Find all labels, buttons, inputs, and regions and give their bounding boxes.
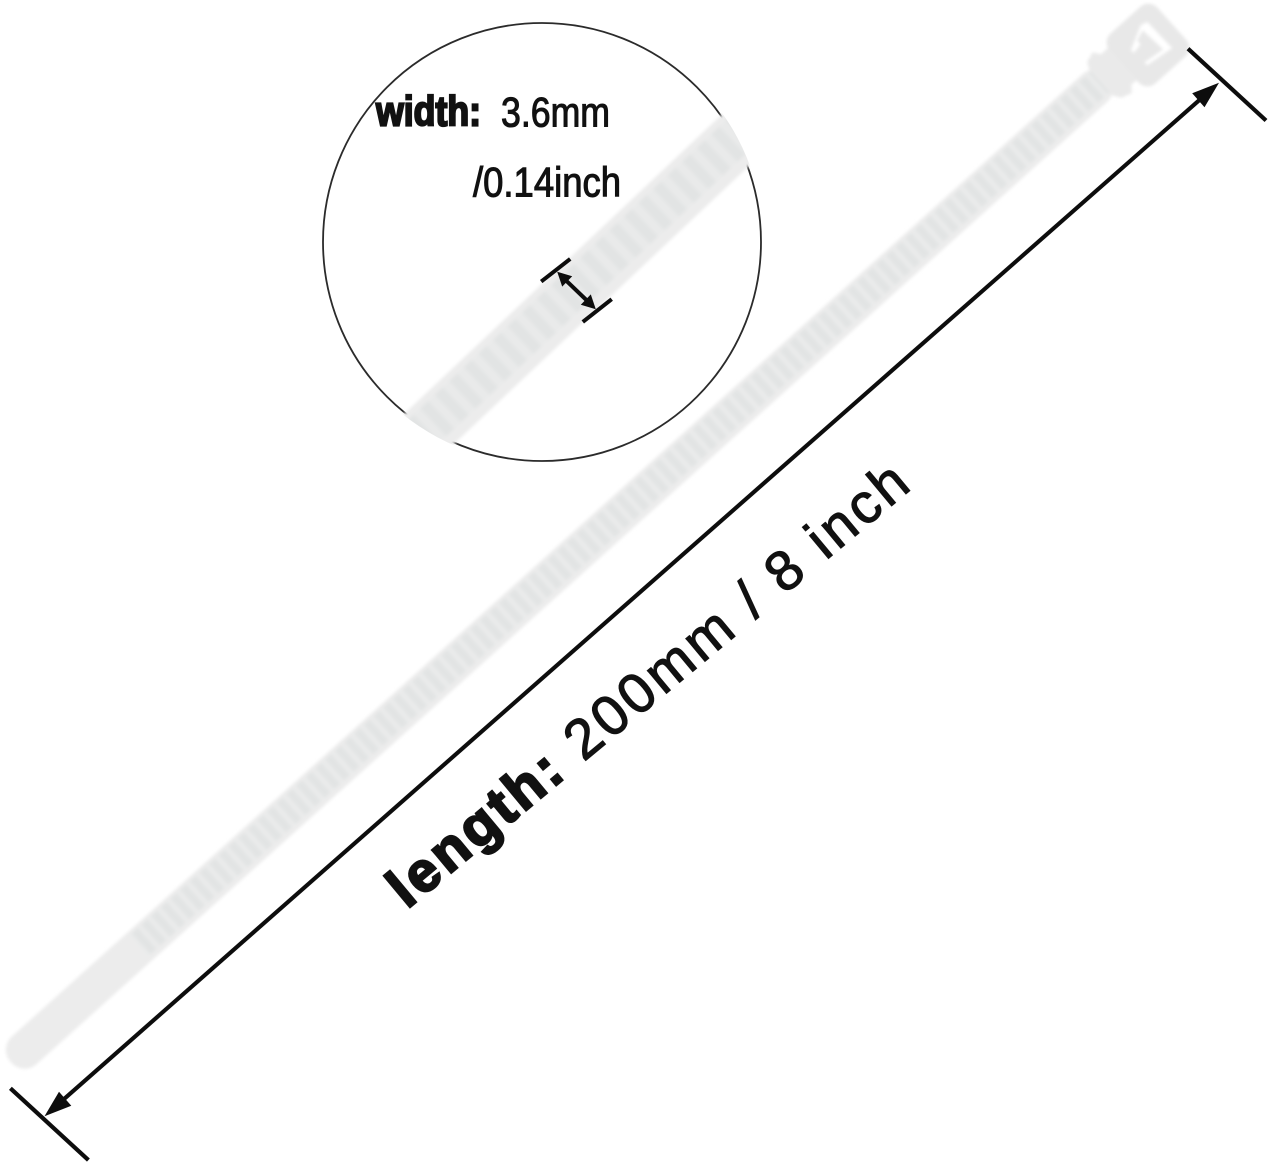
svg-text:width:: width: [375, 88, 481, 135]
svg-text:3.6mm: 3.6mm [501, 88, 610, 135]
svg-text:/0.14inch: /0.14inch [473, 159, 621, 206]
